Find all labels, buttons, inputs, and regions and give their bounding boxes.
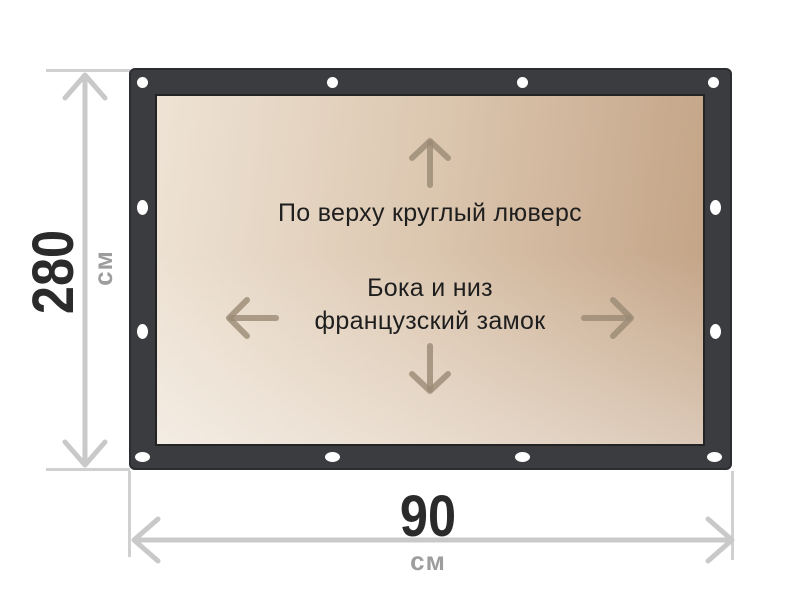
direction-arrows [157, 96, 703, 444]
annotation-middle: Бока и низ французский замок [157, 272, 703, 338]
grommet-icon [710, 324, 721, 339]
grommet-icon [710, 200, 721, 215]
grommet-icon [135, 452, 150, 462]
grommet-icon [137, 77, 148, 88]
tarpaulin-panel: По верху круглый люверс Бока и низ франц… [157, 96, 703, 444]
tarpaulin-dimension-diagram: 280 см 90 см [0, 0, 800, 600]
arrow-up-icon [412, 141, 448, 185]
grommet-icon [515, 452, 530, 462]
grommet-icon [517, 77, 528, 88]
arrow-down-icon [412, 346, 448, 391]
grommet-icon [137, 200, 148, 215]
grommet-icon [137, 324, 148, 339]
grommet-icon [708, 77, 719, 88]
annotation-middle-line2: французский замок [157, 305, 703, 338]
width-unit: см [410, 548, 446, 574]
annotation-middle-line1: Бока и низ [157, 272, 703, 305]
grommet-icon [707, 452, 722, 462]
grommet-icon [327, 77, 338, 88]
height-unit: см [90, 250, 116, 286]
grommet-icon [325, 452, 340, 462]
height-value: 280 [25, 230, 83, 314]
annotation-top: По верху круглый люверс [157, 198, 703, 228]
width-value: 90 [400, 488, 456, 546]
